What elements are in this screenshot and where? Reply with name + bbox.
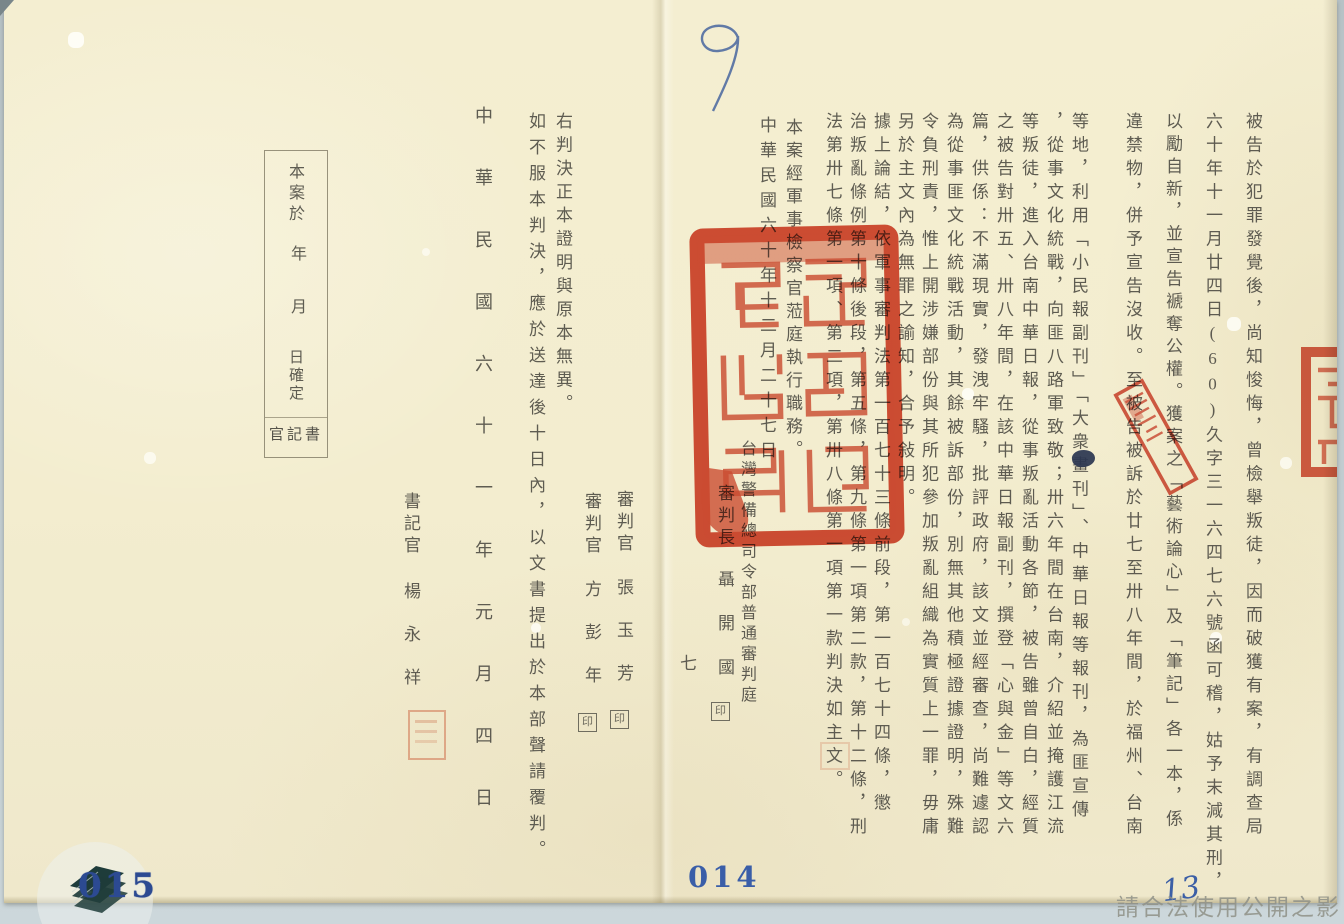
body-column-4: 違禁物，併予宣告沒收。至被告被訴於廿七至卅八年間，於福州、台南 xyxy=(1120,112,1145,841)
judge-1-name: 張玉芳 xyxy=(611,578,636,707)
clerk-name: 楊永祥 xyxy=(398,582,423,711)
body-column-5: 等地，利用「小民報副刊」「大衆畫刊」、中華日報等報刊，為匪宣傳 xyxy=(1066,112,1091,824)
presiding-judge-seal-mark: 印 xyxy=(711,702,730,721)
paper-spread: 被告於犯罪發覺後，尚知悛悔，曾檢舉叛徒，因而破獲有案，有調查局 六十年十一月廿四… xyxy=(4,0,1337,903)
scanned-document: 被告於犯罪發覺後，尚知悛悔，曾檢舉叛徒，因而破獲有案，有調查局 六十年十一月廿四… xyxy=(0,0,1344,924)
confirmation-box-divider xyxy=(265,417,327,418)
confirmation-month: 月 xyxy=(284,298,308,314)
edge-partial-red-seal xyxy=(1300,346,1337,478)
presiding-judge-name: 聶開國 xyxy=(712,570,737,702)
body-column-9: 篇，供係：不滿現實，發洩牢騷，批評政府，該文並經審查，尚難遽認 xyxy=(966,112,991,841)
clerk-title: 書記官 xyxy=(398,492,423,558)
clerk-red-seal xyxy=(408,710,446,760)
folio-page-number: 七 xyxy=(674,654,699,671)
confirmation-clerk-label: 官記書 xyxy=(265,423,327,444)
large-official-red-seal xyxy=(687,222,908,550)
faint-red-mark xyxy=(820,742,850,770)
page-number-stamp-left: 015 xyxy=(78,866,158,906)
confirmation-year: 年 xyxy=(284,245,308,261)
judge-2-title: 審判官 xyxy=(579,492,604,558)
certified-copy-statement: 右判決正本證明與原本無異。 xyxy=(550,112,575,418)
ink-blot xyxy=(1071,448,1096,468)
body-column-1: 被告於犯罪發覺後，尚知悛悔，曾檢舉叛徒，因而破獲有案，有調查局 xyxy=(1240,112,1265,841)
confirmation-line: 本案於 xyxy=(282,163,306,226)
judge-1-seal-mark: 印 xyxy=(610,710,629,729)
judge-2-seal-mark: 印 xyxy=(578,713,597,732)
judge-1-title: 審判官 xyxy=(611,490,636,556)
body-column-10: 為從事匪文化統戰活動，其餘被訴部份，別無其他積極證據證明，殊難 xyxy=(941,112,966,841)
confirmation-day: 日確定 xyxy=(285,349,306,403)
judge-2-name: 方彭年 xyxy=(579,580,604,709)
case-confirmation-stamp-box: 本案於 年 月 日確定 官記書 xyxy=(264,150,328,458)
page-number-stamp-center: 014 xyxy=(688,860,761,894)
page-fold xyxy=(652,0,674,903)
body-column-7: 等叛徒，進入台南中華日報，從事叛亂活動各節，被告雖曾自白，經質 xyxy=(1016,112,1041,841)
usage-watermark-text: 請合法使用公開之影像 xyxy=(1116,888,1344,924)
body-column-8: 之被告對卅五、卅八年間，在該中華日報副刊，撰登「心與金」等文六 xyxy=(991,112,1016,841)
appeal-instruction: 如不服本判決，應於送達後十日內，以文書提出於本部聲請覆判。 xyxy=(523,112,548,866)
body-column-6: ，從事文化統戰，向匪八路軍致敬；卅六年間在台南，介紹並掩護江流 xyxy=(1041,112,1066,841)
copy-issue-date: 中華民國六十一年元月四日 xyxy=(470,106,496,850)
scan-corner-artifact xyxy=(0,0,14,16)
body-column-2: 六十年十一月廿四日(60)久字三一六四七六號函可稽，姑予末減其刑， xyxy=(1200,112,1225,896)
body-column-11: 令負刑責，惟上開涉嫌部份與其所犯參加叛亂組織為實質上一罪，毋庸 xyxy=(916,112,941,841)
handwritten-nine xyxy=(692,14,756,118)
